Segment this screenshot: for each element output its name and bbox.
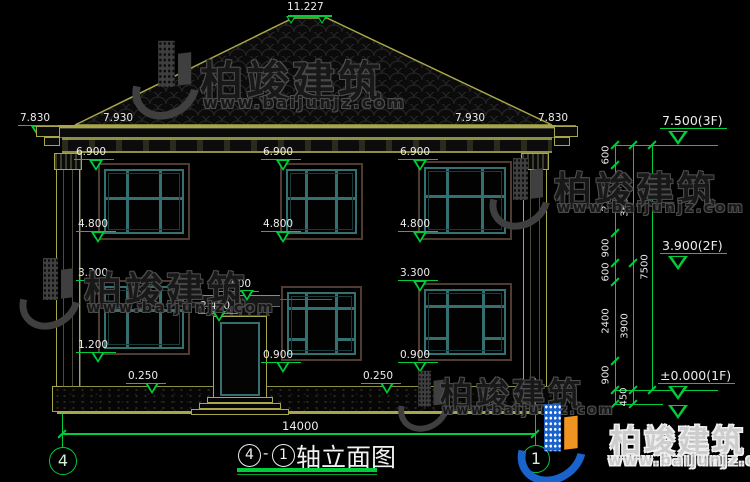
watermark-logo-icon bbox=[492, 158, 550, 222]
title-axis-bubble-b: 1 bbox=[272, 444, 295, 467]
title-dash: - bbox=[263, 447, 268, 459]
axis-line-left bbox=[62, 414, 63, 447]
gutter-end-left bbox=[36, 126, 60, 137]
dentil-band bbox=[62, 140, 552, 153]
door-frame bbox=[213, 316, 267, 399]
dim-eave-level-2: 6.900 bbox=[261, 146, 301, 160]
dim-2f-sill-1: 4.800 bbox=[76, 218, 116, 232]
dim-arrow bbox=[413, 281, 427, 292]
level-arrow-2f bbox=[668, 256, 688, 270]
level-arrow-1f bbox=[668, 386, 688, 400]
dim-eave-inner-right: 7.930 bbox=[453, 112, 493, 126]
dim-arrow bbox=[276, 362, 290, 373]
canopy-edge-line bbox=[280, 299, 332, 300]
dim-arrow bbox=[276, 160, 290, 171]
dim-eave-level-3: 6.900 bbox=[398, 146, 438, 160]
chain-total-7500: 7500 bbox=[640, 254, 651, 279]
dim-arrow bbox=[286, 16, 296, 24]
watermark-url-text: www.baijunjz.com bbox=[557, 200, 745, 216]
level-1f: ±0.000(1F) bbox=[658, 370, 735, 384]
chain-seg-450: 450 bbox=[619, 387, 630, 406]
dim-arrow bbox=[413, 232, 427, 243]
dim-eave-outer-left: 7.830 bbox=[18, 112, 58, 126]
chain-seg-600b: 600 bbox=[601, 262, 612, 281]
dim-arrow bbox=[276, 232, 290, 243]
watermark-url-text: www.baijunjz.com bbox=[203, 93, 406, 112]
dim-eave-outer-right: 7.830 bbox=[536, 112, 576, 126]
dim-1f-sill-2: 0.900 bbox=[398, 349, 438, 363]
level-2f: 3.900(2F) bbox=[660, 240, 727, 254]
title-axis-bubble-a: 4 bbox=[238, 444, 261, 467]
dim-arrow bbox=[317, 16, 327, 24]
chain-seg-2400: 2400 bbox=[601, 308, 612, 333]
dim-1f-sill-1: 0.900 bbox=[261, 349, 301, 363]
level-3f: 7.500(3F) bbox=[660, 115, 727, 129]
entry-step-3 bbox=[191, 409, 289, 415]
dim-ridge-height: 11.227 bbox=[287, 1, 324, 13]
gutter-end-left-step bbox=[44, 137, 60, 146]
gutter-end-right bbox=[554, 126, 578, 137]
title-underline-thin bbox=[237, 474, 377, 475]
dim-2f-sill-2: 4.800 bbox=[261, 218, 301, 232]
chain-seg-900b: 900 bbox=[601, 365, 612, 384]
dim-1f-head-2: 3.300 bbox=[398, 267, 438, 281]
dim-arrow bbox=[380, 383, 394, 394]
door-leaf bbox=[220, 322, 260, 396]
title-underline-thick bbox=[237, 468, 377, 472]
dim-arrow bbox=[413, 160, 427, 171]
elevation-drawing-canvas: 11.227 7.830 7.930 7.930 7.830 bbox=[0, 0, 750, 482]
dim-eave-inner-left: 7.930 bbox=[101, 112, 141, 126]
dim-plinth-2: 0.250 bbox=[361, 370, 401, 384]
dim-arrow bbox=[91, 232, 105, 243]
baijun-logo-url: www.baijunjz.com bbox=[608, 451, 750, 469]
watermark-url-text: www.baijunjz.com bbox=[87, 300, 275, 316]
chain-floor-3900: 3900 bbox=[620, 313, 631, 338]
gutter-end-right-step bbox=[554, 137, 570, 146]
watermark-logo-icon bbox=[135, 41, 199, 111]
dim-total-width: 14000 bbox=[282, 420, 319, 432]
dim-2f-sill-3: 4.800 bbox=[398, 218, 438, 232]
dim-eave-level-1: 6.900 bbox=[74, 146, 114, 160]
watermark-logo-icon bbox=[22, 258, 80, 322]
dim-arrow bbox=[145, 383, 159, 394]
axis-bubble-left: 4 bbox=[49, 447, 77, 475]
dim-line-width bbox=[62, 433, 535, 435]
dim-1f-sill-left: 1.200 bbox=[76, 339, 116, 353]
level-arrow-3f bbox=[668, 131, 688, 145]
dim-plinth-1: 0.250 bbox=[126, 370, 166, 384]
dim-arrow bbox=[91, 352, 105, 363]
dim-arrow bbox=[89, 160, 103, 171]
baijun-logo-icon bbox=[521, 404, 586, 476]
chain-seg-900a: 900 bbox=[601, 238, 612, 257]
